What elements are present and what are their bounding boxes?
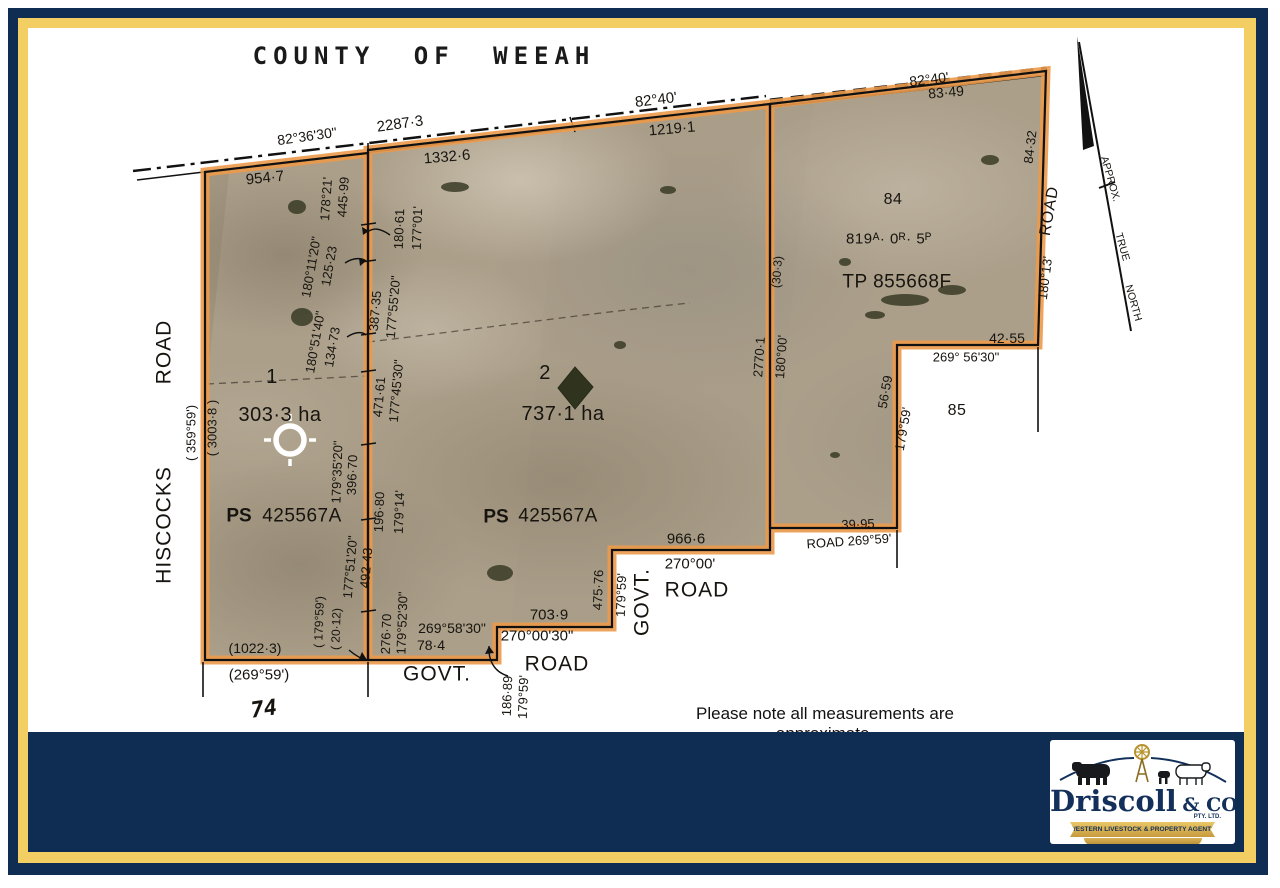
agency-logo[interactable]: Driscoll & CO. PTY. LTD. WESTERN LIVESTO…: [1050, 740, 1235, 844]
map-label-55-179-59-: 179°59': [614, 573, 629, 617]
map-label-31-425567a: 425567A: [262, 507, 342, 526]
map-label-4-1219-1: 1219·1: [648, 119, 696, 138]
logo-banner-ribbon: WESTERN LIVESTOCK & PROPERTY AGENTS: [1070, 822, 1215, 837]
map-label-45-425567a: 425567A: [518, 507, 598, 526]
map-label-33-177-01-: 177°01': [410, 206, 425, 250]
map-label-43-737-1-ha: 737·1 ha: [522, 404, 605, 424]
map-label-27-74: 74: [249, 697, 278, 722]
map-label-78-north: NORTH: [1123, 284, 1143, 323]
map-label-6-954-7: 954·7: [245, 169, 285, 188]
map-label-0-county-of-weeah: COUNTY OF WEEAH: [253, 44, 596, 68]
map-label-21-177-51-20-: 177°51'20": [341, 535, 359, 599]
map-label-35-177-55-20-: 177°55'20": [384, 275, 402, 339]
map-label-76-approx-: APPROX.: [1099, 155, 1122, 203]
map-label-71-56-59: 56·59: [876, 374, 895, 409]
map-label-70-269-56-30-: 269° 56'30": [933, 351, 1000, 364]
map-label-56-govt-: GOVT.: [632, 568, 653, 636]
map-label-14-445-99: 445·99: [335, 176, 351, 217]
map-label-16-125-23: 125·23: [319, 245, 339, 287]
map-label-65-tp-855668f: TP 855668F: [842, 273, 951, 292]
map-label-51-govt-: GOVT.: [403, 664, 471, 685]
bull-icon: [1072, 762, 1110, 785]
map-label-58-270-00-: 270°00': [665, 557, 716, 572]
map-label-40-276-70: 276·70: [379, 614, 393, 655]
map-label-29-303-3-ha: 303·3 ha: [239, 405, 322, 425]
plan-page: COUNTY OF WEEAH82°36'30"2287·382°40'1219…: [0, 0, 1280, 888]
map-label-59-road: ROAD: [665, 580, 730, 601]
map-label-75-road-269-59-: ROAD 269°59': [806, 532, 892, 551]
windmill-icon: [1135, 745, 1149, 782]
map-label-52-186-89: 186·89: [500, 676, 514, 717]
map-label-12--3003-8-: ( 3003·8 ): [206, 400, 219, 456]
map-label-73-85: 85: [948, 403, 967, 419]
map-label-62--30-3-: (30·3): [770, 256, 784, 289]
map-label-69-42-55: 42·55: [989, 331, 1025, 345]
map-label-72-179-59-: 179°59': [893, 406, 913, 451]
map-label-57-966-6: 966·6: [667, 532, 705, 547]
map-label-15-180-11-20-: 180°11'20": [299, 235, 323, 298]
map-label-48-78-4: 78·4: [417, 638, 445, 652]
map-label-67-road: ROAD: [1038, 185, 1062, 237]
logo-banner-text: WESTERN LIVESTOCK & PROPERTY AGENTS: [1069, 826, 1215, 833]
map-label-9-road: ROAD: [154, 320, 175, 385]
logo-artwork: [1050, 740, 1235, 786]
map-label-60-2770-1: 2770·1: [751, 336, 767, 377]
map-label-46-703-9: 703·9: [530, 608, 568, 623]
map-label-63-84: 84: [884, 192, 903, 208]
lamb-icon: [1158, 771, 1170, 784]
map-label-34-387-35: 387·35: [367, 290, 383, 331]
logo-suffix: & CO.: [1182, 794, 1235, 816]
map-label-19-179-35-20-: 179°35'20": [329, 440, 344, 503]
map-label-41-179-52-30-: 179°52'30": [394, 591, 409, 654]
map-label-32-180-61: 180·61: [392, 209, 406, 250]
map-label-11--359-59-: ( 359°59'): [185, 405, 198, 461]
map-label-13-178-21-: 178°21': [318, 177, 334, 222]
map-label-1-82-36-30-: 82°36'30": [276, 125, 337, 147]
map-label-8-83-49: 83·49: [928, 83, 965, 100]
map-label-66-84-32: 84·32: [1022, 130, 1039, 165]
logo-banner-swash: [1084, 838, 1202, 844]
map-label-47-269-58-30-: 269°58'30": [418, 621, 486, 635]
logo-wordmark: Driscoll & CO.: [1050, 784, 1235, 818]
map-label-22-492-43: 492·43: [358, 547, 374, 588]
map-label-53-179-59-: 179°59': [516, 675, 531, 719]
map-label-25--1022-3-: (1022·3): [229, 641, 282, 655]
map-label-61-180-00-: 180°00': [773, 335, 789, 380]
map-label-36-471-61: 471·61: [371, 376, 387, 417]
map-label-39-179-14-: 179°14': [392, 490, 407, 534]
map-label-20-396-70: 396·70: [345, 455, 359, 496]
map-label-10-hiscocks: HISCOCKS: [154, 466, 175, 584]
map-label-2-2287-3: 2287·3: [376, 113, 424, 134]
logo-pty-ltd: PTY. LTD.: [1194, 814, 1221, 820]
map-label-26--269-59-: (269°59'): [229, 668, 290, 683]
map-label-64-819-0-5-: 819ᴬ· 0ᴿ· 5ᴾ: [846, 232, 932, 247]
map-label-5-1332-6: 1332·6: [423, 147, 471, 166]
map-label-74-39-95: 39·95: [841, 517, 875, 531]
map-label-44-ps: PS: [483, 508, 508, 527]
map-label-30-ps: PS: [226, 507, 251, 526]
map-label-50-road: ROAD: [525, 654, 590, 675]
bottom-navy-band: Driscoll & CO. PTY. LTD. WESTERN LIVESTO…: [28, 732, 1244, 852]
map-label-28-1: 1: [266, 367, 278, 387]
map-label-23--179-59-: ( 179°59'): [312, 596, 326, 648]
map-label-37-177-45-30-: 177°45'30": [387, 359, 405, 423]
map-label-24--20-12-: ( 20·12): [329, 608, 342, 650]
map-label-68-180-13-: 180°13': [1036, 255, 1054, 300]
sheep-icon: [1176, 763, 1210, 785]
map-label-42-2: 2: [539, 363, 551, 383]
map-label-18-134-73: 134·73: [322, 326, 342, 368]
map-label-49-270-00-30-: 270°00'30": [501, 629, 574, 644]
map-label-54-475-76: 475·76: [591, 570, 605, 611]
map-label-38-196-80: 196·80: [372, 492, 386, 533]
logo-name: Driscoll: [1050, 784, 1177, 818]
map-label-77-true: TRUE: [1113, 232, 1131, 262]
map-label-3-82-40-: 82°40': [634, 90, 678, 110]
